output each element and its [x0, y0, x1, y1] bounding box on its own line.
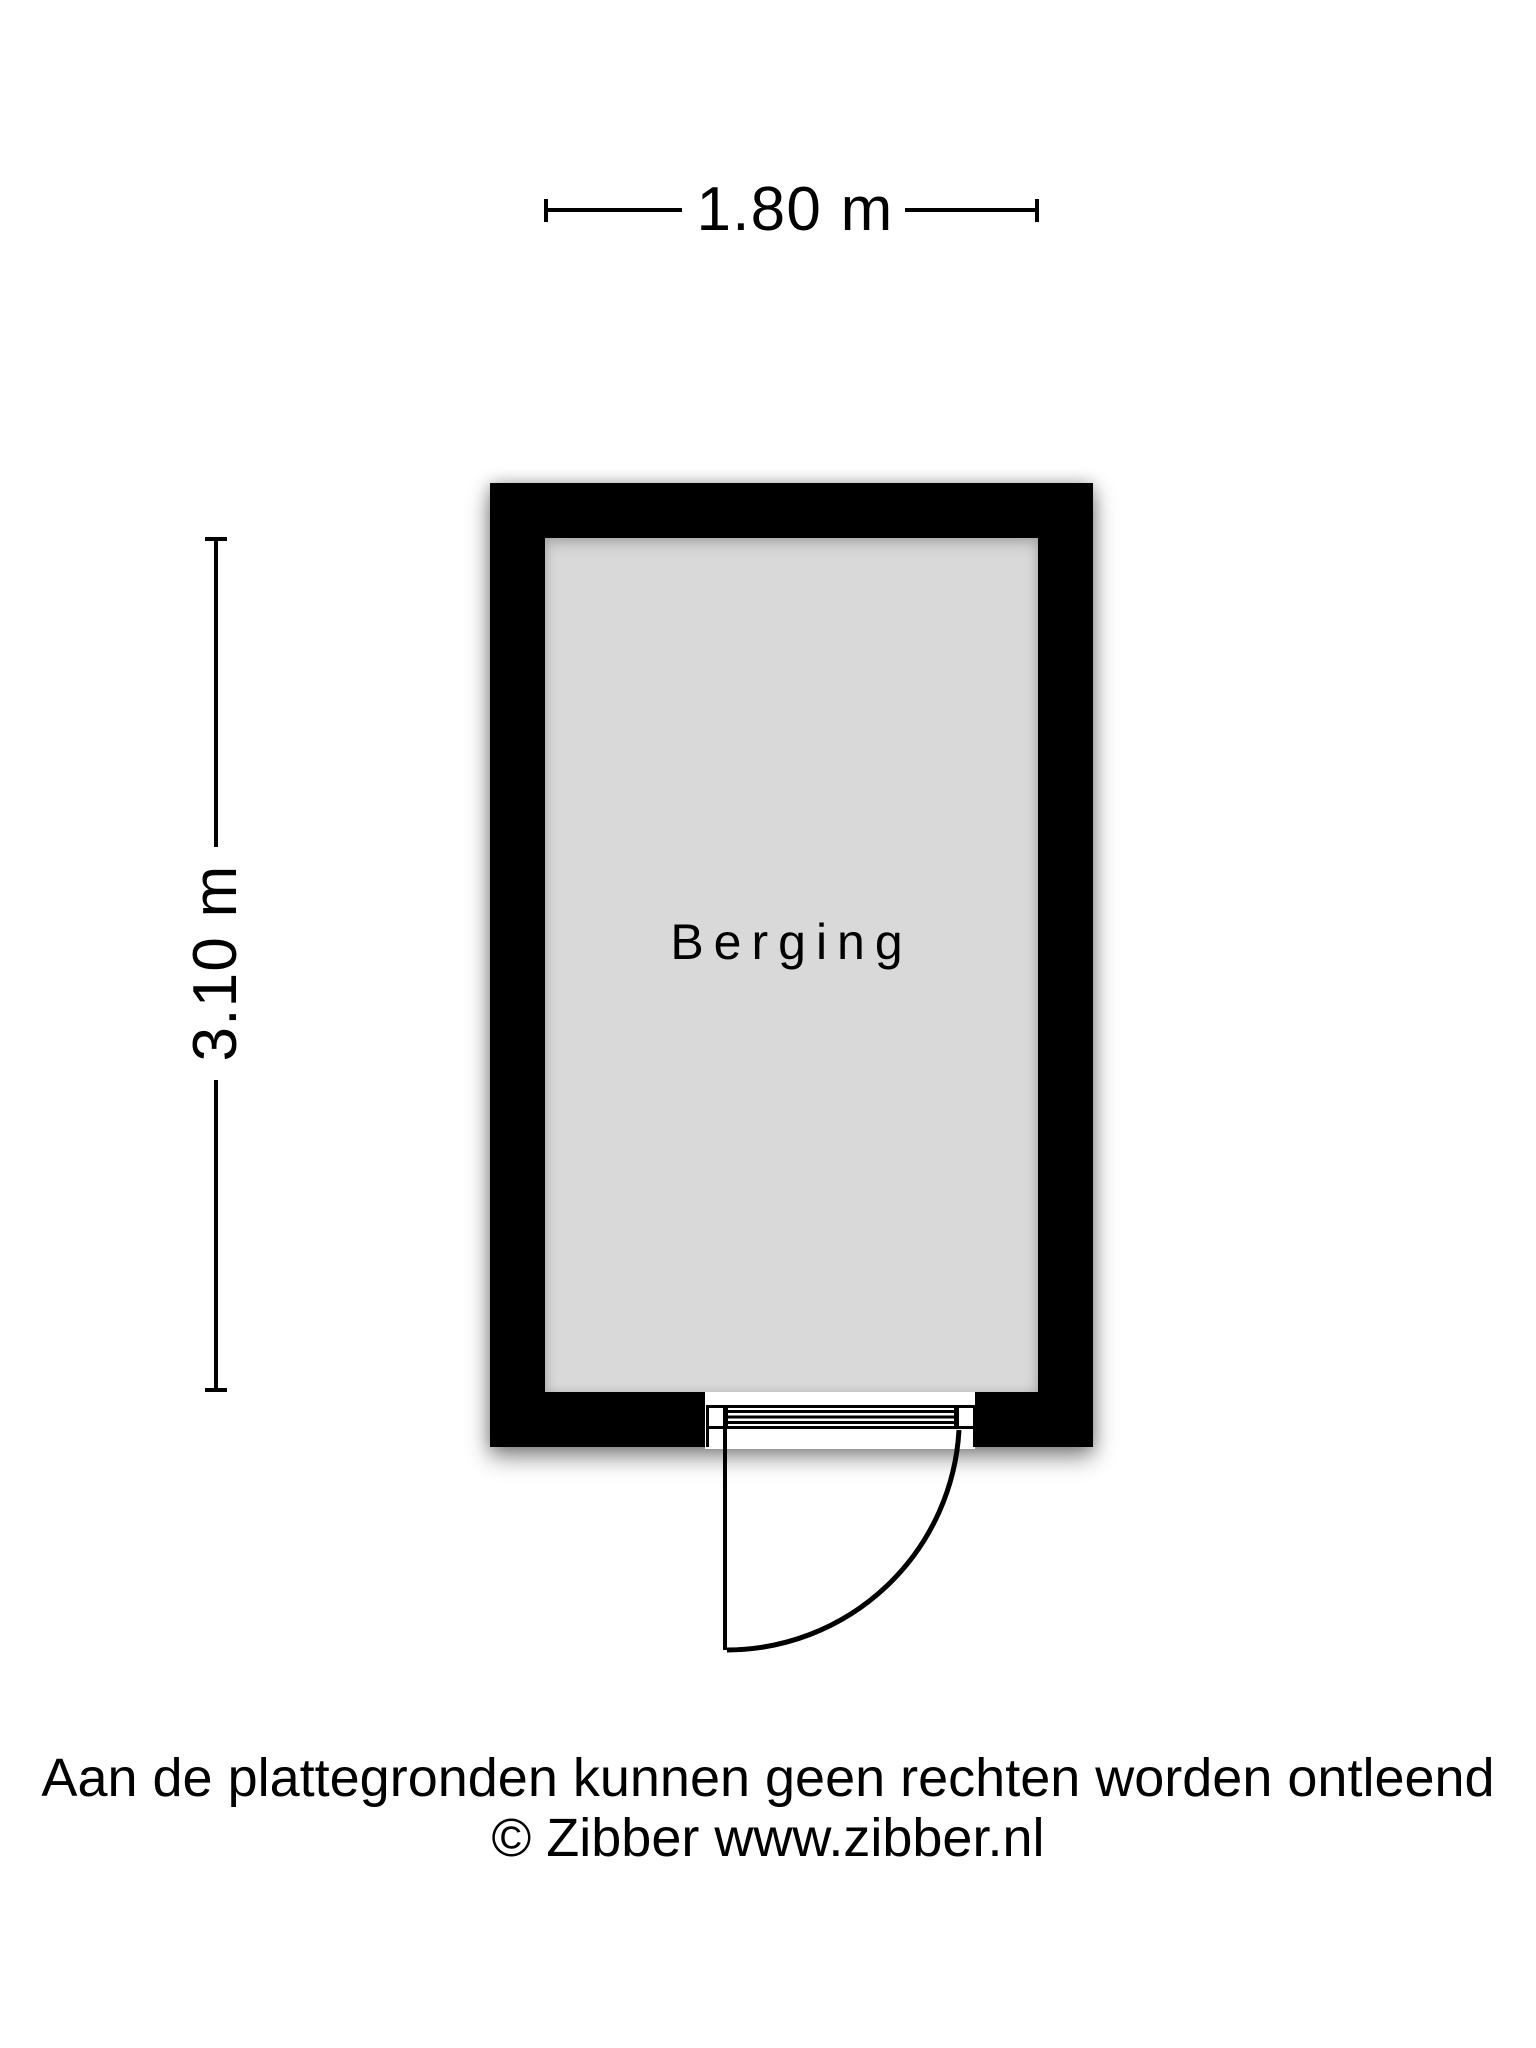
- height-dimension-line-top: [214, 539, 218, 847]
- door-jamb-tail-right: [973, 1429, 976, 1447]
- door-threshold: [725, 1405, 957, 1429]
- height-dimension-label: 3.10 m: [185, 843, 247, 1083]
- width-dimension-label: 1.80 m: [660, 179, 930, 241]
- copyright-text: © Zibber www.zibber.nl: [0, 1808, 1536, 1868]
- door-jamb-left: [706, 1405, 726, 1429]
- height-dimension-tick-top: [205, 537, 227, 541]
- room-label: Berging: [545, 917, 1038, 967]
- width-dimension-tick-left: [544, 199, 548, 222]
- floorplan-canvas: 1.80 m 3.10 m Berging Aan de plattegrond…: [0, 0, 1536, 2048]
- door-leaf: [723, 1405, 727, 1650]
- disclaimer-text: Aan de plattegronden kunnen geen rechten…: [0, 1748, 1536, 1808]
- width-dimension-tick-right: [1035, 199, 1039, 222]
- door-jamb-right: [956, 1405, 976, 1429]
- footer: Aan de plattegronden kunnen geen rechten…: [0, 1748, 1536, 1868]
- height-dimension-tick-bottom: [205, 1388, 227, 1392]
- height-dimension-line-bottom: [214, 1080, 218, 1390]
- door-jamb-tail-left: [706, 1429, 709, 1447]
